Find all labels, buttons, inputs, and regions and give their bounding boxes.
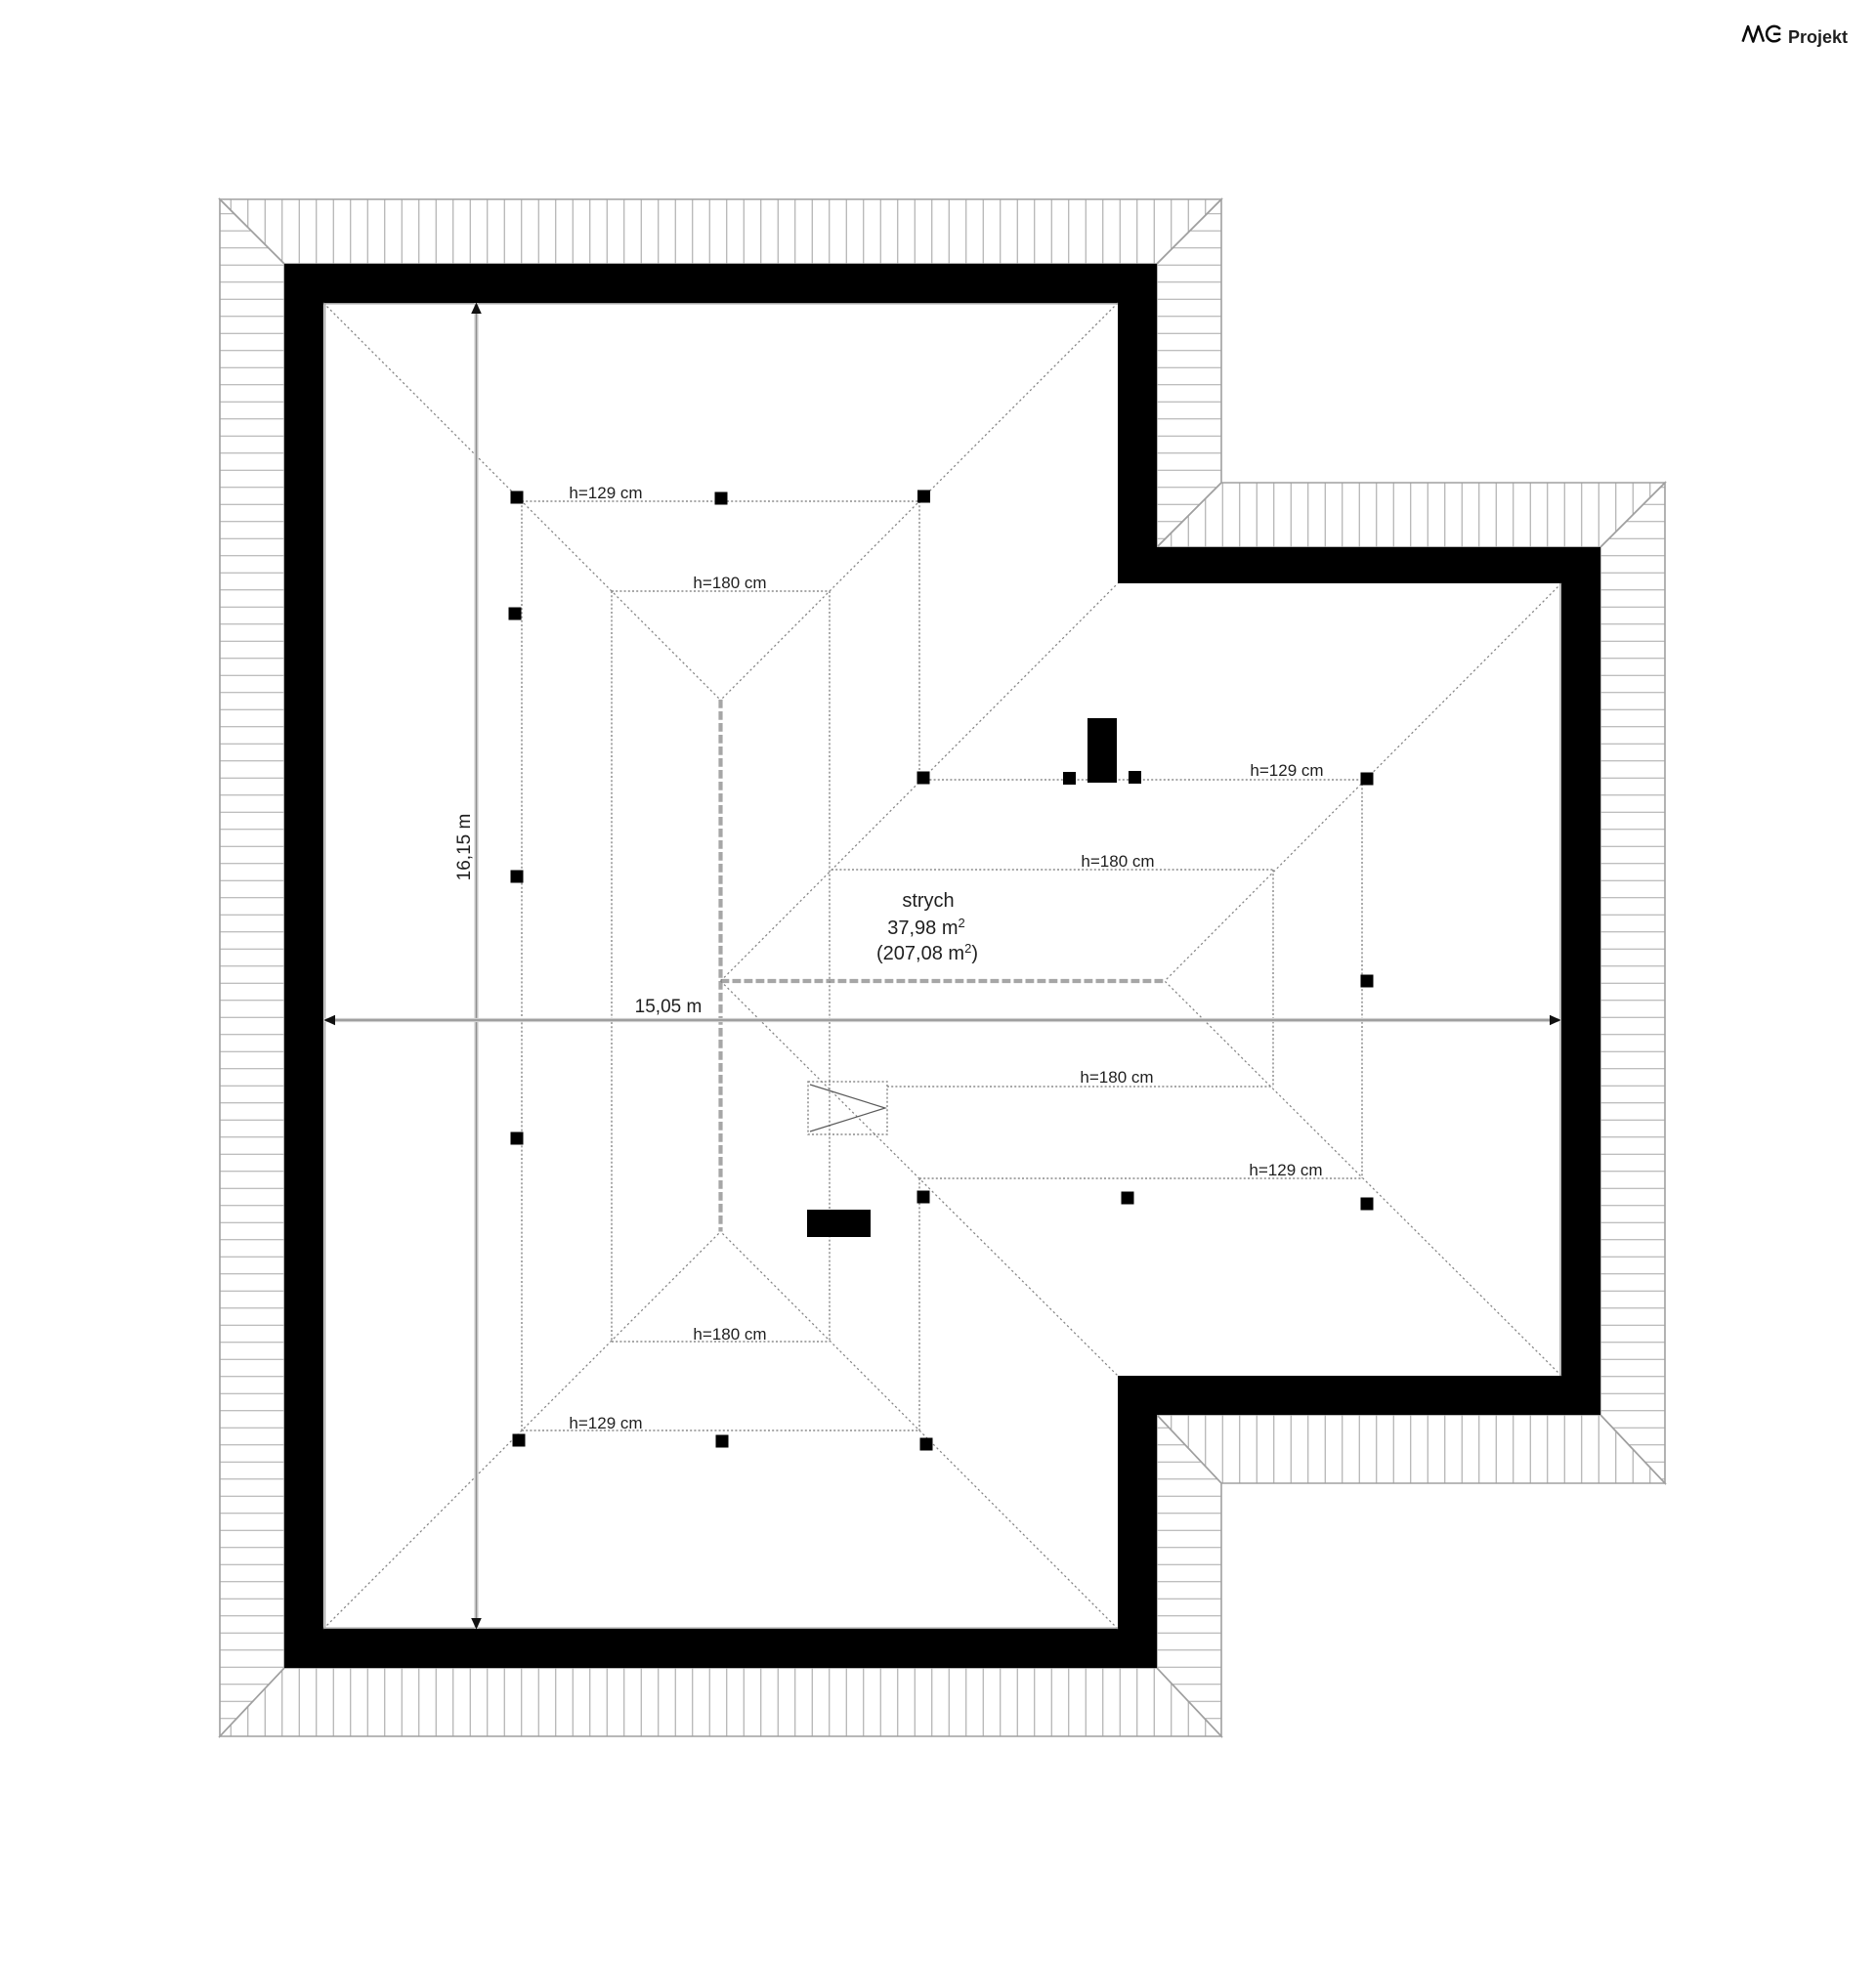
svg-text:16,15 m: 16,15 m (454, 814, 475, 881)
svg-text:h=180 cm: h=180 cm (693, 1325, 766, 1344)
svg-text:h=180 cm: h=180 cm (1080, 1068, 1153, 1087)
svg-text:h=129 cm: h=129 cm (1249, 1161, 1322, 1179)
svg-text:15,05 m: 15,05 m (635, 997, 703, 1017)
svg-text:37,98 m2: 37,98 m2 (887, 916, 965, 939)
svg-text:h=129 cm: h=129 cm (569, 484, 642, 502)
svg-text:(207,08 m2): (207,08 m2) (876, 941, 978, 964)
svg-text:h=129 cm: h=129 cm (1250, 761, 1323, 780)
svg-text:h=180 cm: h=180 cm (693, 574, 766, 592)
svg-text:h=129 cm: h=129 cm (569, 1414, 642, 1432)
svg-text:Projekt: Projekt (1788, 27, 1848, 47)
svg-text:strych: strych (902, 890, 954, 912)
svg-text:h=180 cm: h=180 cm (1081, 852, 1154, 871)
